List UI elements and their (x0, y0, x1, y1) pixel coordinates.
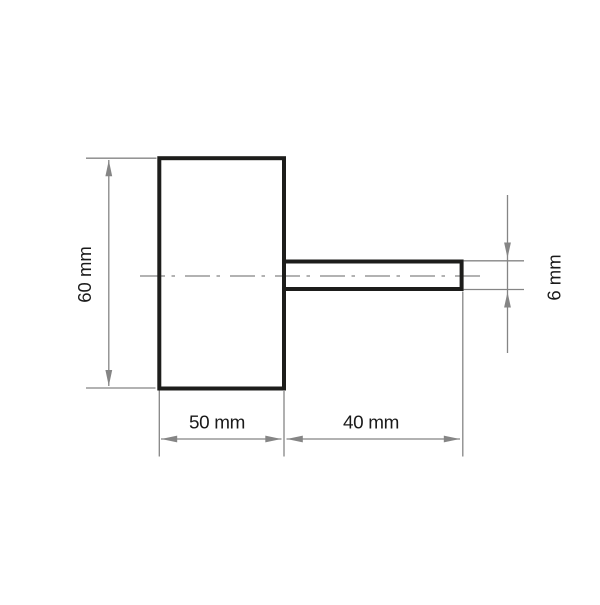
svg-text:40 mm: 40 mm (343, 413, 399, 434)
svg-text:6 mm: 6 mm (544, 254, 565, 300)
svg-text:60 mm: 60 mm (74, 246, 95, 303)
svg-text:50 mm: 50 mm (189, 413, 245, 434)
